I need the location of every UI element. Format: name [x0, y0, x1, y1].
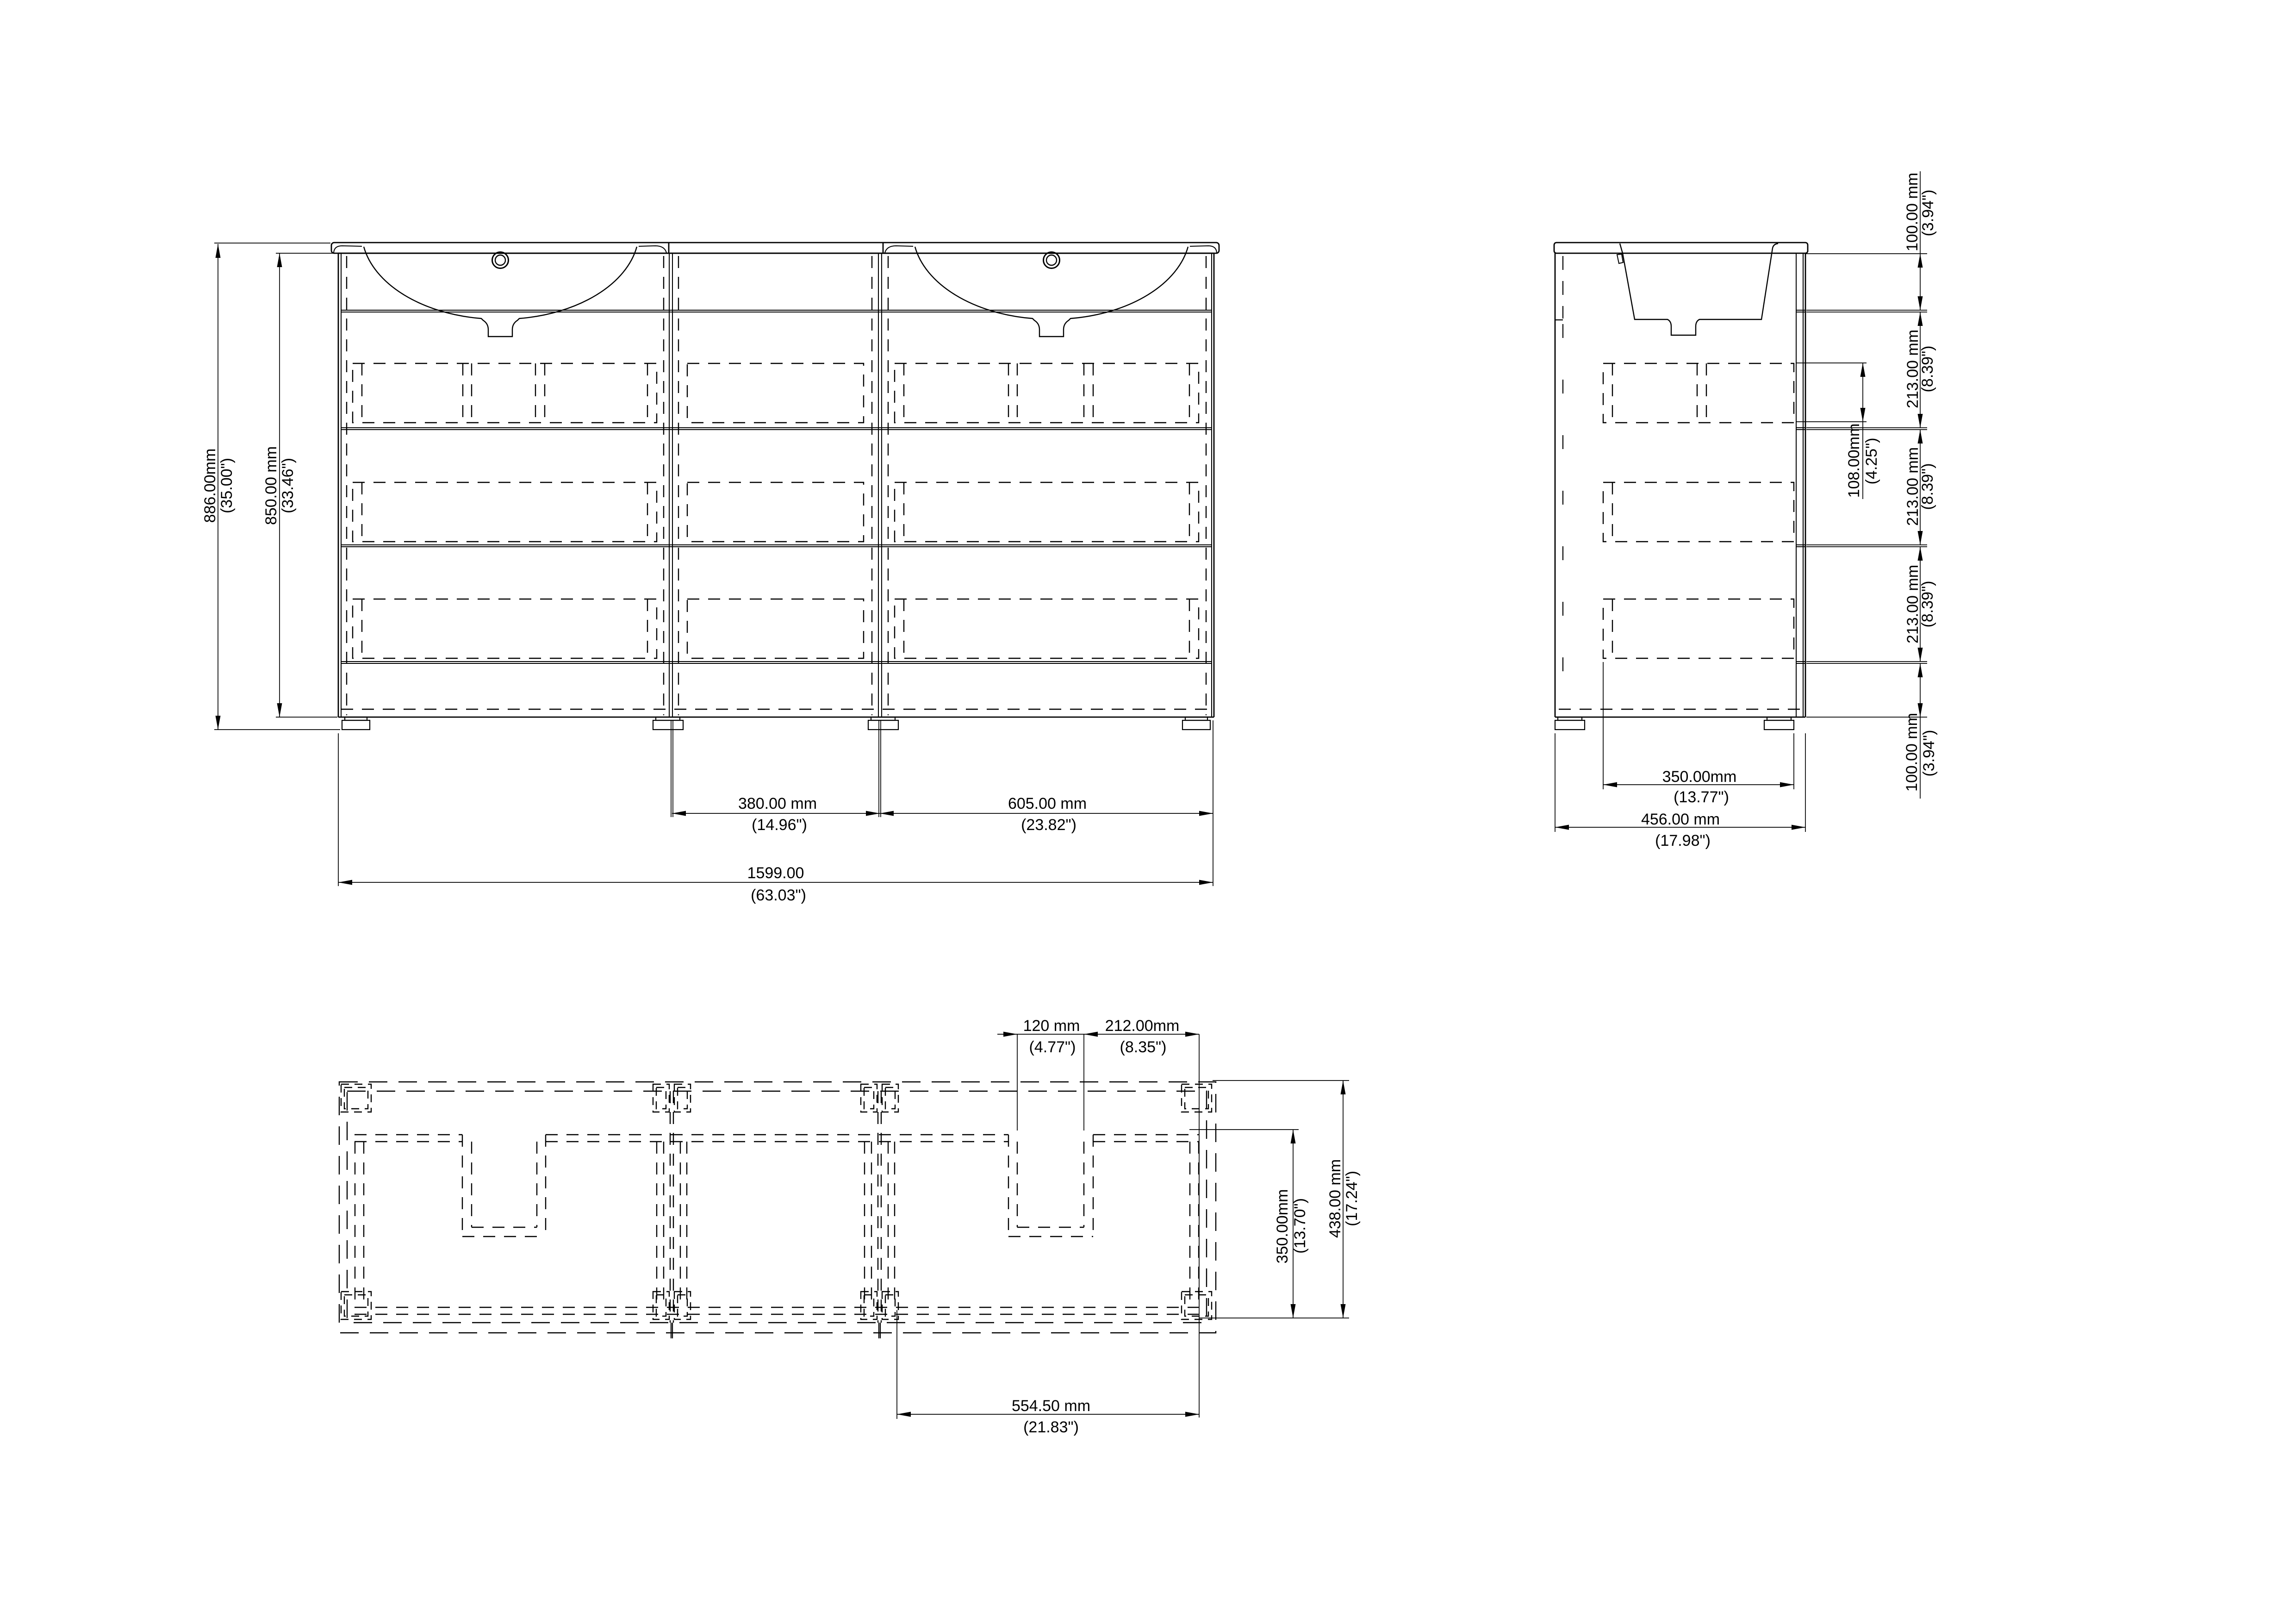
svg-text:(8.39"): (8.39") [1919, 463, 1936, 510]
svg-text:886.00mm: 886.00mm [201, 449, 219, 523]
svg-text:(21.83"): (21.83") [1023, 1418, 1079, 1436]
svg-text:(8.35"): (8.35") [1120, 1038, 1167, 1056]
svg-text:100.00 mm: 100.00 mm [1904, 173, 1921, 251]
svg-text:100.00 mm: 100.00 mm [1903, 713, 1921, 792]
svg-text:(63.03"): (63.03") [751, 887, 806, 904]
svg-text:212.00mm: 212.00mm [1105, 1017, 1180, 1035]
svg-text:(33.46"): (33.46") [279, 458, 297, 513]
svg-text:1599.00: 1599.00 [747, 864, 804, 882]
svg-text:(14.96"): (14.96") [752, 816, 807, 834]
svg-text:456.00 mm: 456.00 mm [1641, 811, 1720, 828]
svg-text:(3.94"): (3.94") [1919, 190, 1937, 237]
svg-text:554.50 mm: 554.50 mm [1012, 1397, 1090, 1415]
svg-text:(35.00"): (35.00") [218, 458, 236, 513]
svg-text:380.00 mm: 380.00 mm [738, 795, 817, 812]
svg-text:(17.98"): (17.98") [1655, 832, 1711, 849]
svg-text:(17.24"): (17.24") [1343, 1171, 1361, 1226]
svg-text:120 mm: 120 mm [1023, 1017, 1080, 1035]
svg-text:108.00mm: 108.00mm [1845, 424, 1863, 498]
svg-text:(8.39"): (8.39") [1919, 346, 1936, 393]
svg-text:605.00 mm: 605.00 mm [1008, 795, 1087, 812]
svg-text:(4.77"): (4.77") [1029, 1038, 1076, 1056]
svg-text:438.00 mm: 438.00 mm [1326, 1159, 1344, 1238]
svg-text:350.00mm: 350.00mm [1274, 1189, 1291, 1264]
svg-text:(23.82"): (23.82") [1021, 816, 1076, 834]
svg-text:(8.39"): (8.39") [1919, 581, 1936, 628]
svg-text:(4.25"): (4.25") [1863, 438, 1880, 485]
svg-text:(13.77"): (13.77") [1674, 788, 1729, 806]
svg-text:350.00mm: 350.00mm [1662, 768, 1737, 786]
svg-text:(13.70"): (13.70") [1291, 1198, 1309, 1254]
svg-text:(3.94"): (3.94") [1920, 730, 1938, 777]
svg-text:850.00 mm: 850.00 mm [262, 446, 280, 525]
